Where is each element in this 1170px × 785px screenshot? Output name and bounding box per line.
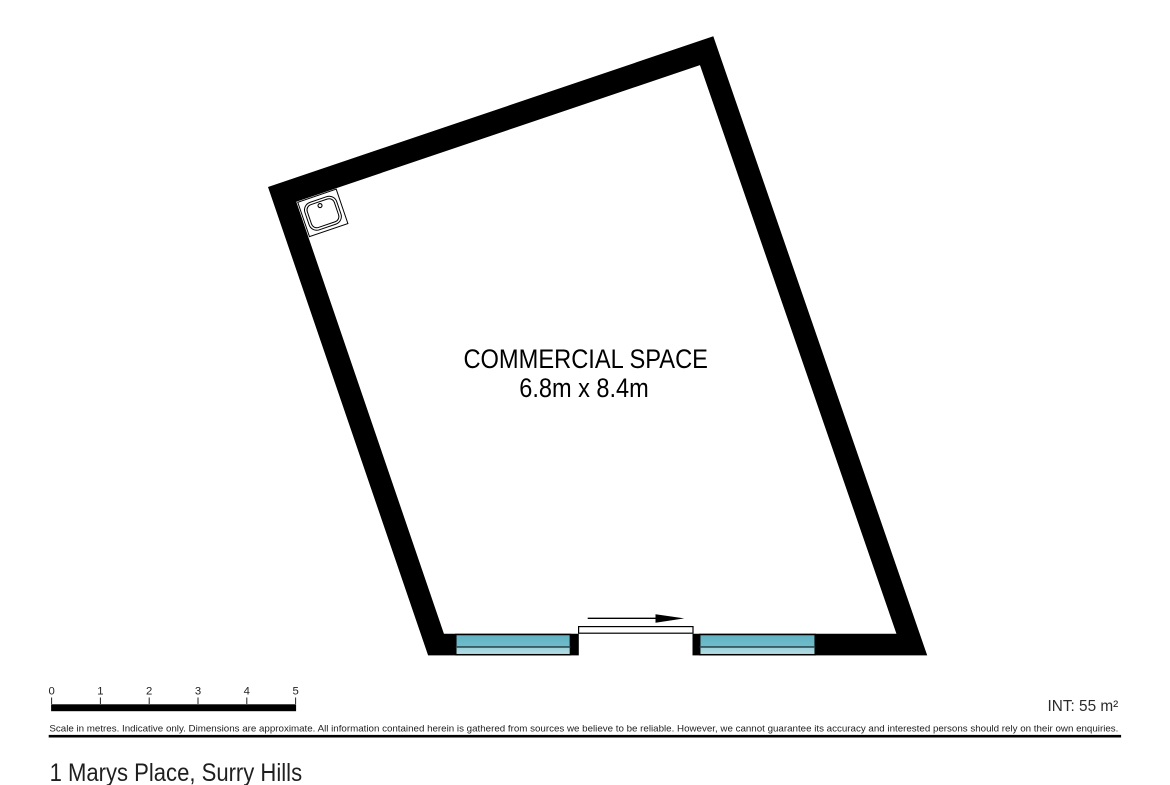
svg-text:COMMERCIAL SPACE: COMMERCIAL SPACE — [463, 344, 708, 374]
svg-text:3: 3 — [195, 686, 201, 698]
svg-text:2: 2 — [146, 686, 152, 698]
svg-text:INT: 55 m²: INT: 55 m² — [1048, 698, 1119, 715]
svg-text:1: 1 — [97, 686, 103, 698]
svg-text:Scale in metres. Indicative on: Scale in metres. Indicative only. Dimens… — [49, 722, 1118, 733]
svg-text:5: 5 — [292, 686, 298, 698]
svg-text:1 Marys Place, Surry Hills: 1 Marys Place, Surry Hills — [50, 759, 302, 785]
svg-text:6.8m x 8.4m: 6.8m x 8.4m — [519, 373, 649, 403]
svg-text:4: 4 — [244, 686, 250, 698]
svg-text:0: 0 — [48, 686, 54, 698]
